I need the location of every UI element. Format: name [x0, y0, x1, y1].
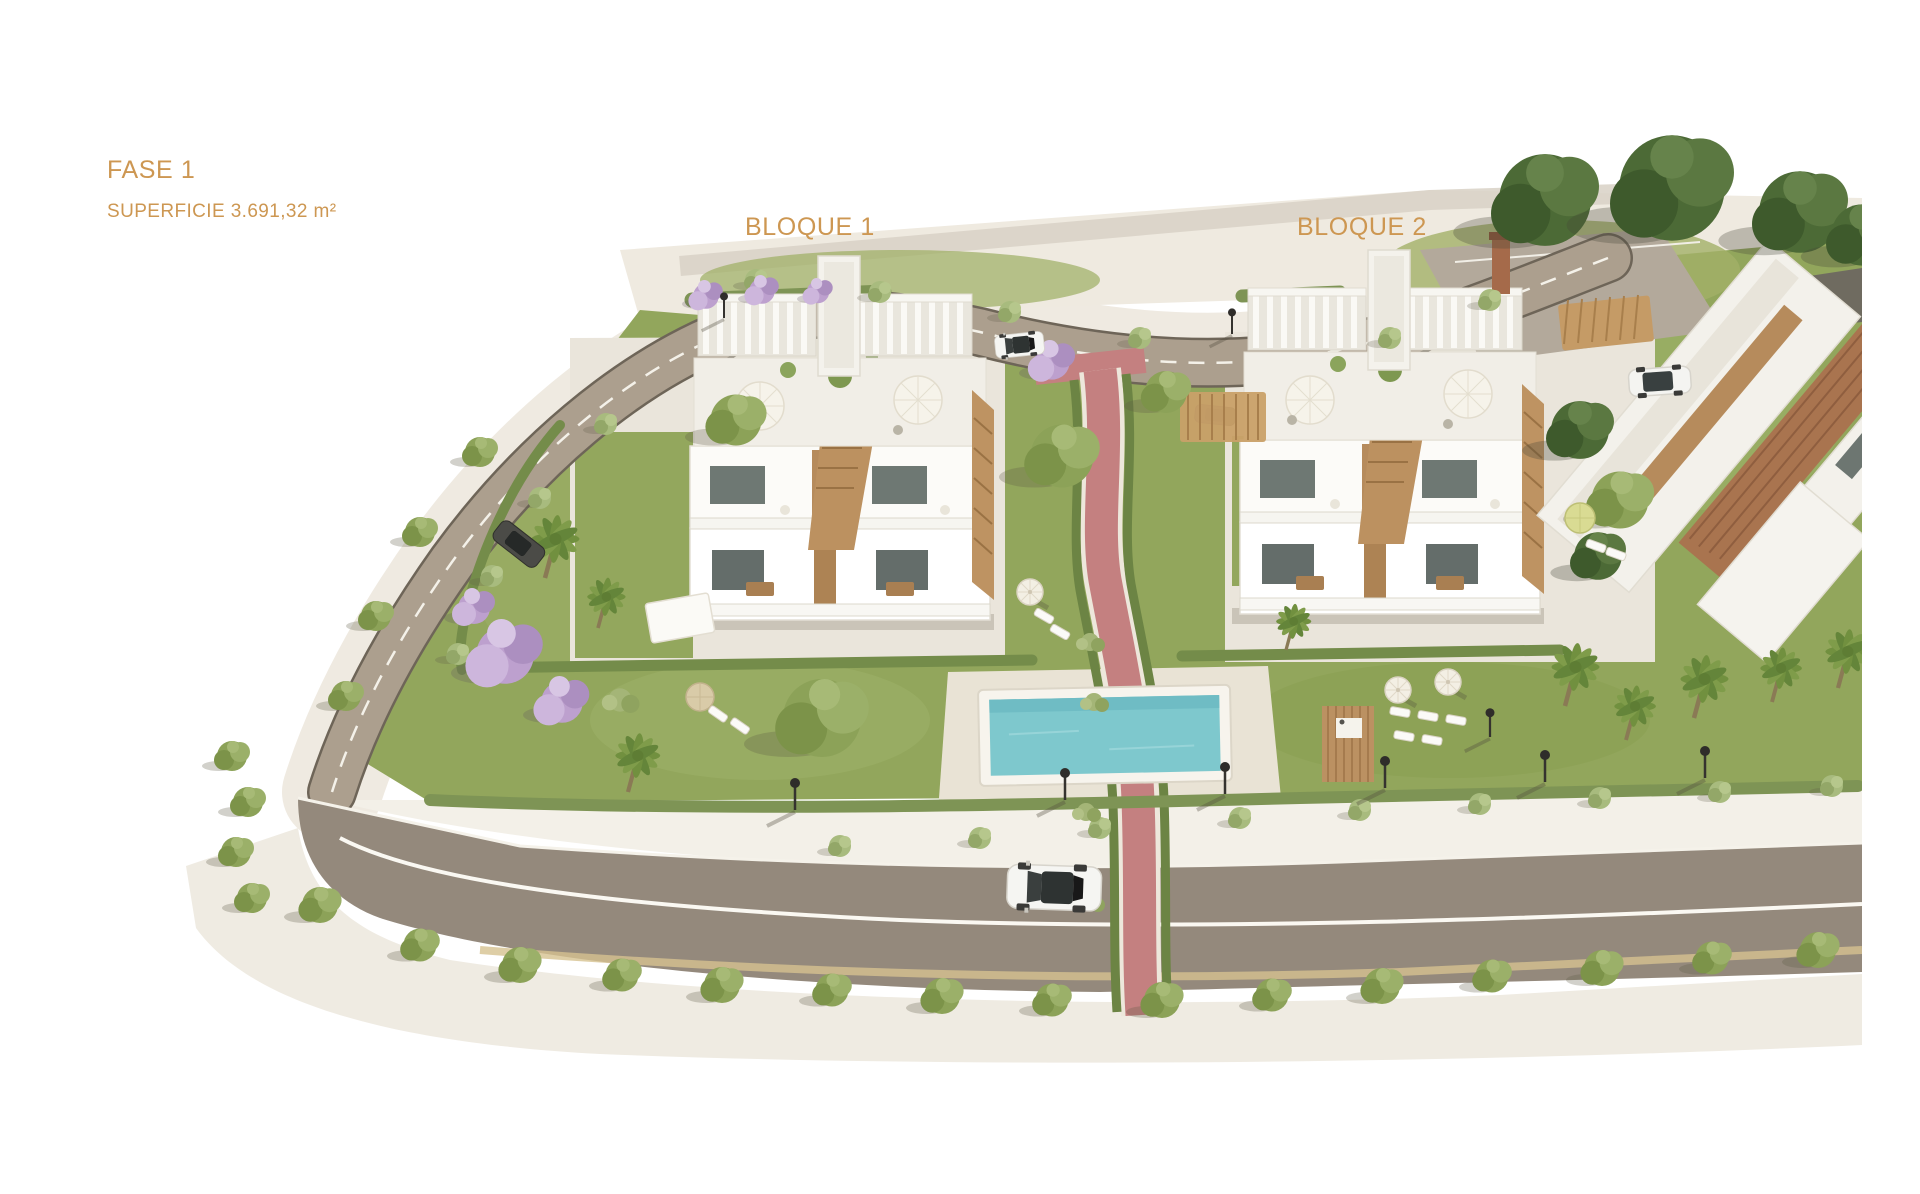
white-suv-parking: [1628, 364, 1692, 399]
phase-label: FASE 1: [107, 156, 195, 185]
block2-label: BLOQUE 2: [1297, 213, 1427, 242]
wood-deck: [1322, 706, 1374, 782]
site-render-scene: [0, 0, 1920, 1194]
block1-label: BLOQUE 1: [745, 213, 875, 242]
white-car-main-road: [1006, 860, 1102, 915]
area-label: SUPERFICIE 3.691,32 m²: [107, 201, 337, 223]
site-render-page: FASE 1 SUPERFICIE 3.691,32 m² BLOQUE 1 B…: [0, 0, 1920, 1194]
